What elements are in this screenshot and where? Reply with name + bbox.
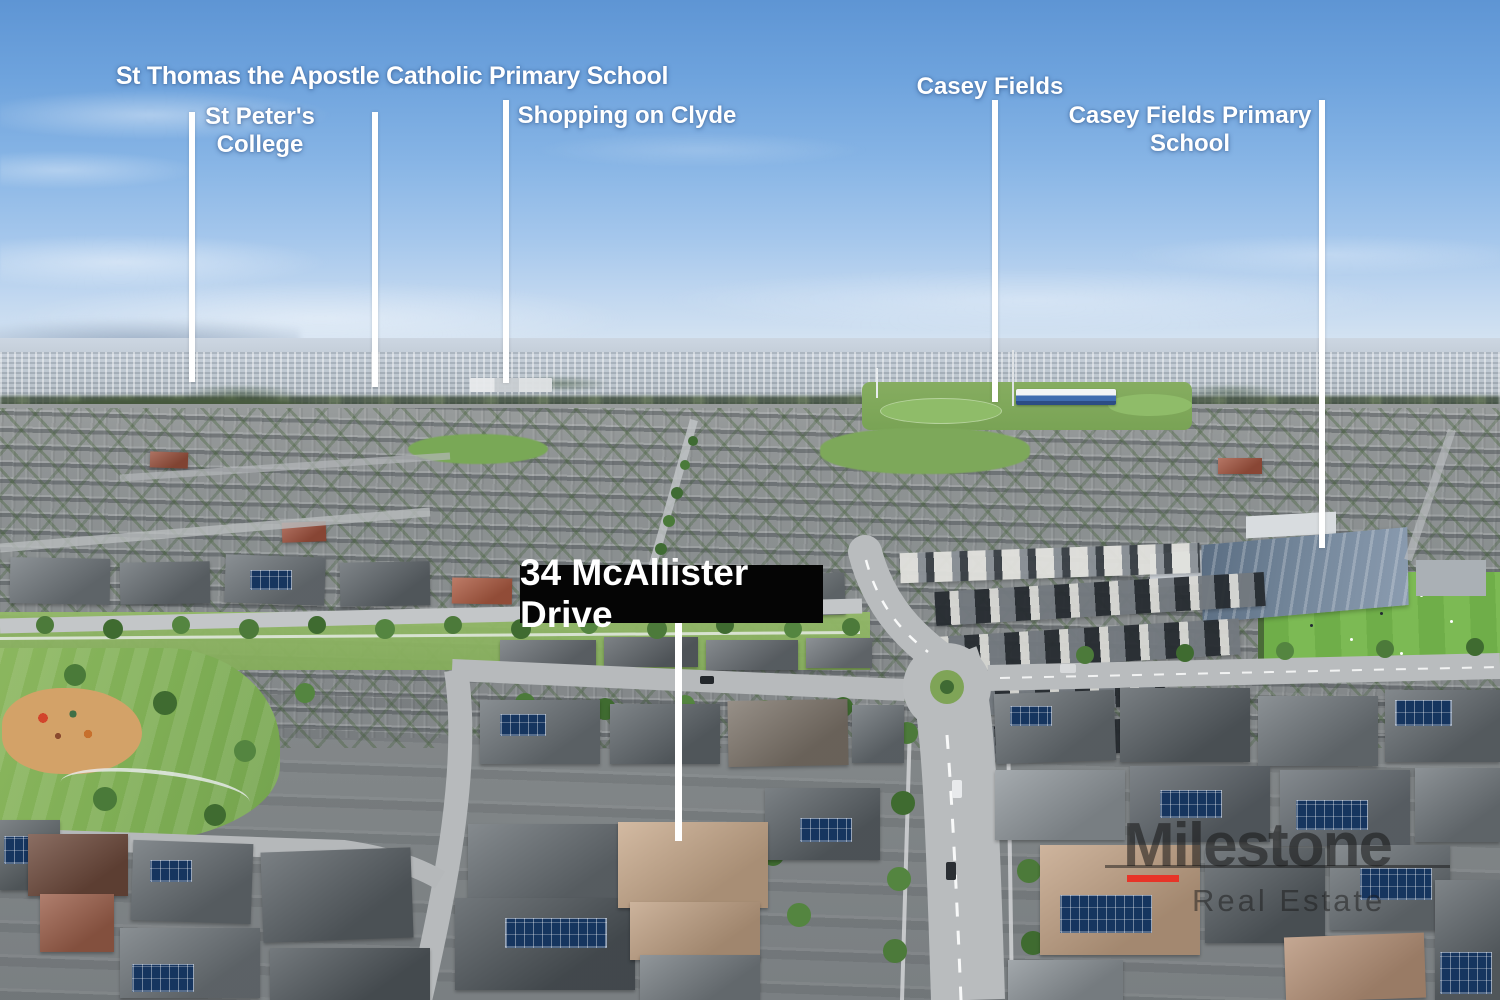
solar-panels: [1440, 952, 1492, 994]
house-roof: [852, 705, 904, 763]
callout-label-st-peters-college: St Peter's College: [150, 103, 370, 159]
callout-label-casey-fields-primary: Casey Fields Primary School: [1065, 102, 1315, 158]
side-street: [1408, 430, 1452, 560]
callout-line-casey-fields: [992, 100, 998, 402]
solar-panels: [132, 964, 194, 992]
car: [946, 862, 956, 880]
tree-cluster: [0, 0, 10, 10]
footpath: [1008, 724, 1012, 1000]
callout-label-line: School: [1065, 130, 1315, 158]
watermark-accent-bar: [1127, 875, 1179, 882]
brick-house-walls: [40, 894, 114, 952]
house-roof: [1258, 696, 1378, 766]
callout-label-st-thomas-school: St Thomas the Apostle Catholic Primary S…: [60, 62, 724, 91]
house-roof: [994, 690, 1116, 764]
house-roof: [131, 840, 254, 924]
subject-house-roof: [630, 902, 760, 960]
house-roof: [727, 699, 848, 767]
callout-label-shopping-on-clyde: Shopping on Clyde: [497, 102, 757, 130]
subject-house-roof: [618, 822, 768, 908]
main-road-upper: [865, 552, 942, 660]
callout-line-st-thomas-school: [372, 112, 378, 387]
callout-line-shopping-on-clyde: [503, 100, 509, 383]
solar-panels: [500, 714, 546, 736]
solar-panels: [800, 818, 852, 842]
callout-label-line: Casey Fields Primary: [1065, 102, 1315, 130]
house-roof: [640, 955, 760, 1000]
watermark-logo: Milestone Real Estate: [1095, 815, 1465, 930]
car: [1060, 664, 1076, 673]
side-street: [120, 456, 450, 478]
house-roof: [260, 847, 413, 942]
callout-label-line: College: [150, 131, 370, 159]
callout-label-casey-fields: Casey Fields: [890, 73, 1090, 101]
house-roof: [610, 704, 720, 764]
house-roof: [468, 824, 638, 902]
property-address-box: 34 McAllister Drive: [520, 565, 823, 623]
solar-panels: [505, 918, 607, 948]
callout-line-casey-fields-primary: [1319, 100, 1325, 548]
car: [700, 676, 714, 684]
footpath: [902, 724, 910, 1000]
house-roof-brown: [28, 834, 128, 896]
solar-panels: [1395, 700, 1452, 726]
aerial-photo: St Thomas the Apostle Catholic Primary S…: [0, 0, 1500, 1000]
solar-panels: [150, 860, 192, 882]
car: [952, 780, 962, 798]
watermark-rule: [1105, 865, 1450, 868]
house-roof: [1120, 688, 1250, 762]
house-roof: [270, 948, 430, 1000]
house-roof: [1008, 960, 1123, 1000]
roundabout-tree: [940, 680, 954, 694]
callout-label-line: St Peter's: [150, 103, 370, 131]
property-pointer-line: [675, 623, 682, 841]
side-street: [0, 512, 430, 548]
house-roof-tan: [1284, 933, 1426, 1000]
watermark-tagline: Real Estate: [1192, 885, 1385, 916]
solar-panels: [1010, 706, 1052, 726]
